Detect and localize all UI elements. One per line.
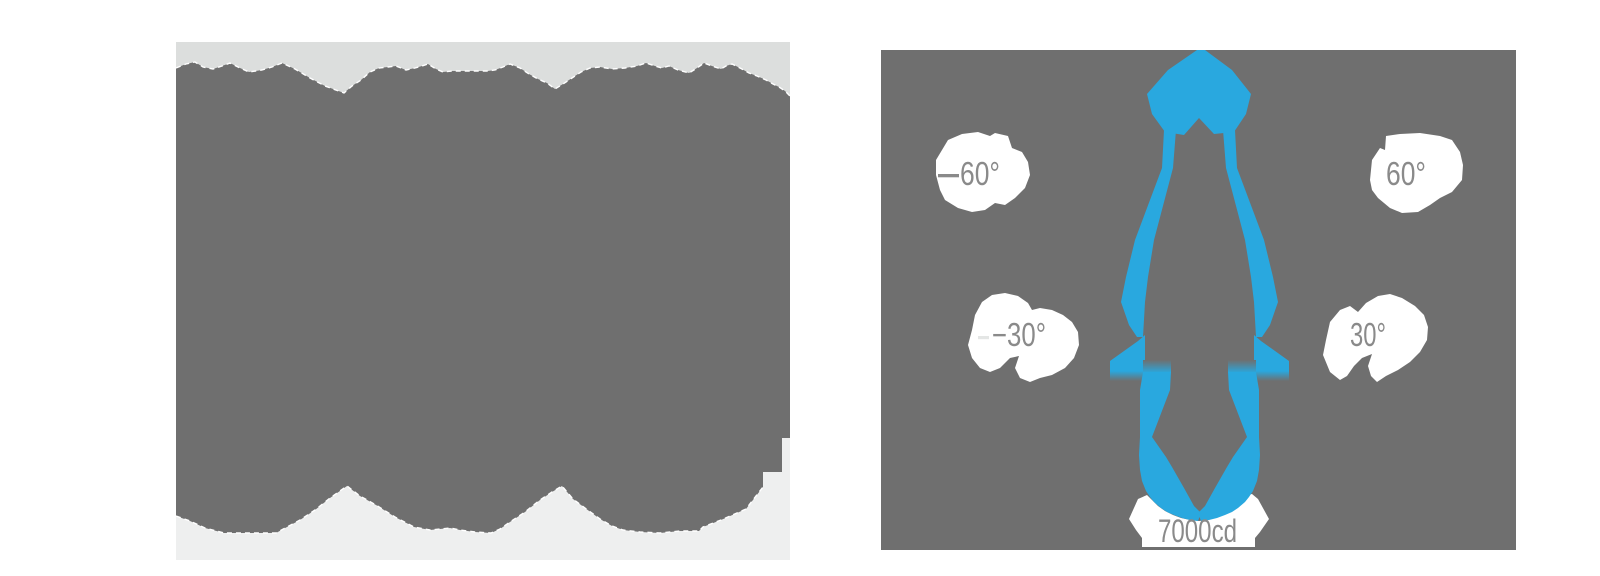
svg-text:7000cd: 7000cd — [1158, 513, 1237, 549]
svg-text:60°: 60° — [960, 155, 1000, 192]
svg-text:30°: 30° — [1350, 316, 1386, 353]
svg-text:60°: 60° — [1386, 155, 1426, 192]
svg-text:−30°: −30° — [992, 316, 1046, 353]
